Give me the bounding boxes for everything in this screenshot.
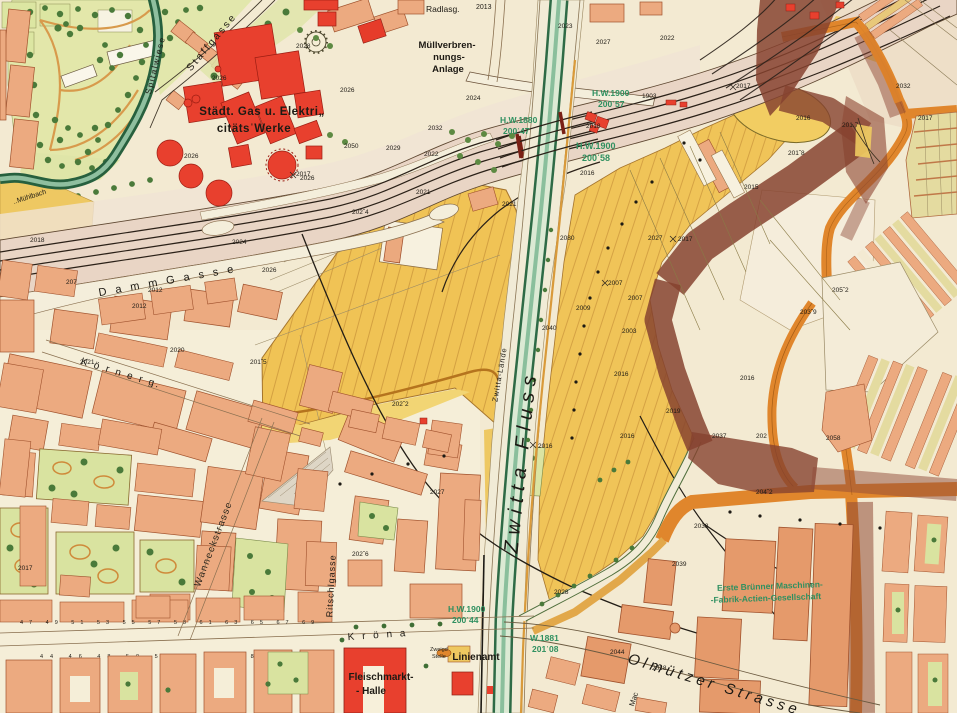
svg-text:2016: 2016	[614, 371, 629, 378]
svg-text:2026: 2026	[212, 75, 227, 82]
svg-text:2015: 2015	[744, 184, 759, 191]
svg-text:Anlage: Anlage	[432, 64, 464, 75]
svg-text:2027: 2027	[648, 235, 663, 242]
svg-text:2009: 2009	[576, 305, 591, 312]
svg-text:2022: 2022	[660, 35, 675, 42]
svg-text:2024: 2024	[232, 239, 247, 246]
svg-text:201.7: 201.7	[842, 122, 859, 129]
svg-text:2027: 2027	[596, 39, 611, 46]
svg-text:2013: 2013	[476, 4, 492, 11]
svg-text:Müllverbren-: Müllverbren-	[418, 40, 475, 51]
svg-text:2044: 2044	[610, 649, 625, 656]
svg-text:203ˆ9: 203ˆ9	[800, 309, 817, 316]
svg-text:200ˈ44: 200ˈ44	[452, 615, 479, 625]
svg-text:Fleischmarkt-: Fleischmarkt-	[348, 672, 413, 683]
svg-text:2040: 2040	[542, 325, 557, 332]
svg-text:citätsˈWerke: citätsˈWerke	[217, 123, 291, 135]
svg-text:2020: 2020	[170, 347, 185, 354]
svg-text:Stelle: Stelle	[432, 654, 446, 660]
svg-text:H.W.1880: H.W.1880	[500, 115, 538, 125]
svg-text:2039: 2039	[672, 561, 687, 568]
svg-text:2027: 2027	[430, 489, 445, 496]
svg-text:Radlasg.: Radlasg.	[426, 4, 460, 14]
svg-text:2026: 2026	[340, 87, 355, 94]
svg-text:207: 207	[66, 279, 77, 286]
svg-text:H.W.1900: H.W.1900	[592, 88, 630, 98]
svg-text:2038: 2038	[694, 523, 709, 530]
svg-text:Zweigd: Zweigd	[430, 647, 448, 653]
svg-text:H.W.1900: H.W.1900	[448, 604, 486, 614]
svg-text:nungs-: nungs-	[433, 52, 465, 63]
svg-text:2016: 2016	[796, 115, 811, 122]
svg-text:- Halle: - Halle	[356, 686, 386, 697]
svg-text:202ˆ6: 202ˆ6	[352, 551, 369, 558]
svg-text:2007: 2007	[608, 280, 623, 287]
svg-text:2016: 2016	[740, 375, 755, 382]
svg-text:2037: 2037	[712, 433, 727, 440]
svg-text:2003: 2003	[622, 328, 637, 335]
svg-text:2023: 2023	[558, 23, 573, 30]
svg-text:202ˆ2: 202ˆ2	[392, 401, 409, 408]
svg-text:2018: 2018	[30, 237, 45, 244]
svg-text:2007: 2007	[628, 295, 643, 302]
svg-text:202ˆ4: 202ˆ4	[352, 209, 369, 216]
svg-text:2012: 2012	[148, 287, 163, 294]
svg-text:Städt. Gas u. Elektri„: Städt. Gas u. Elektri„	[199, 106, 324, 118]
svg-text:2021: 2021	[416, 189, 431, 196]
svg-text:2026: 2026	[262, 267, 277, 274]
svg-text:2017: 2017	[296, 171, 311, 178]
svg-text:201ˆ8: 201ˆ8	[788, 150, 805, 157]
svg-text:2026: 2026	[184, 153, 199, 160]
svg-text:200ˈ47: 200ˈ47	[503, 126, 530, 136]
svg-text:2028: 2028	[554, 589, 569, 596]
svg-text:2029: 2029	[386, 145, 401, 152]
svg-text:2018: 2018	[652, 665, 667, 672]
svg-text:2050: 2050	[344, 143, 359, 150]
svg-text:204ˆ2: 204ˆ2	[756, 489, 773, 496]
svg-text:2032: 2032	[896, 83, 911, 90]
svg-text:2018: 2018	[586, 123, 601, 130]
svg-text:H.W.1900: H.W.1900	[576, 141, 616, 151]
svg-text:2021: 2021	[502, 201, 517, 208]
svg-text:Linienamt: Linienamt	[452, 652, 500, 663]
svg-text:200ˈ58: 200ˈ58	[582, 153, 610, 163]
svg-text:2032: 2032	[428, 125, 443, 132]
svg-text:2058: 2058	[826, 435, 841, 442]
svg-text:2016: 2016	[580, 170, 595, 177]
svg-text:201ˈ08: 201ˈ08	[532, 644, 559, 654]
svg-text:2017: 2017	[736, 83, 751, 90]
svg-text:201ˆ5: 201ˆ5	[250, 359, 267, 366]
svg-text:47 49 51 53 55 57 58 61 63 65: 47 49 51 53 55 57 58 61 63 65 67 69	[20, 620, 320, 626]
svg-text:2017: 2017	[18, 565, 33, 572]
svg-text:W.1881: W.1881	[530, 633, 559, 643]
svg-text:2017: 2017	[918, 115, 933, 122]
svg-text:202: 202	[756, 433, 767, 440]
svg-text:2024: 2024	[466, 95, 481, 102]
svg-text:2012: 2012	[132, 303, 147, 310]
svg-text:2017: 2017	[678, 236, 693, 243]
svg-text:2016: 2016	[620, 433, 635, 440]
svg-text:2022: 2022	[424, 151, 439, 158]
svg-text:200ˈ57: 200ˈ57	[598, 99, 625, 109]
svg-text:2016: 2016	[538, 443, 553, 450]
svg-text:2028: 2028	[296, 43, 311, 50]
svg-text:1903: 1903	[642, 93, 657, 100]
svg-text:2080: 2080	[560, 235, 575, 242]
svg-text:2019: 2019	[666, 408, 681, 415]
